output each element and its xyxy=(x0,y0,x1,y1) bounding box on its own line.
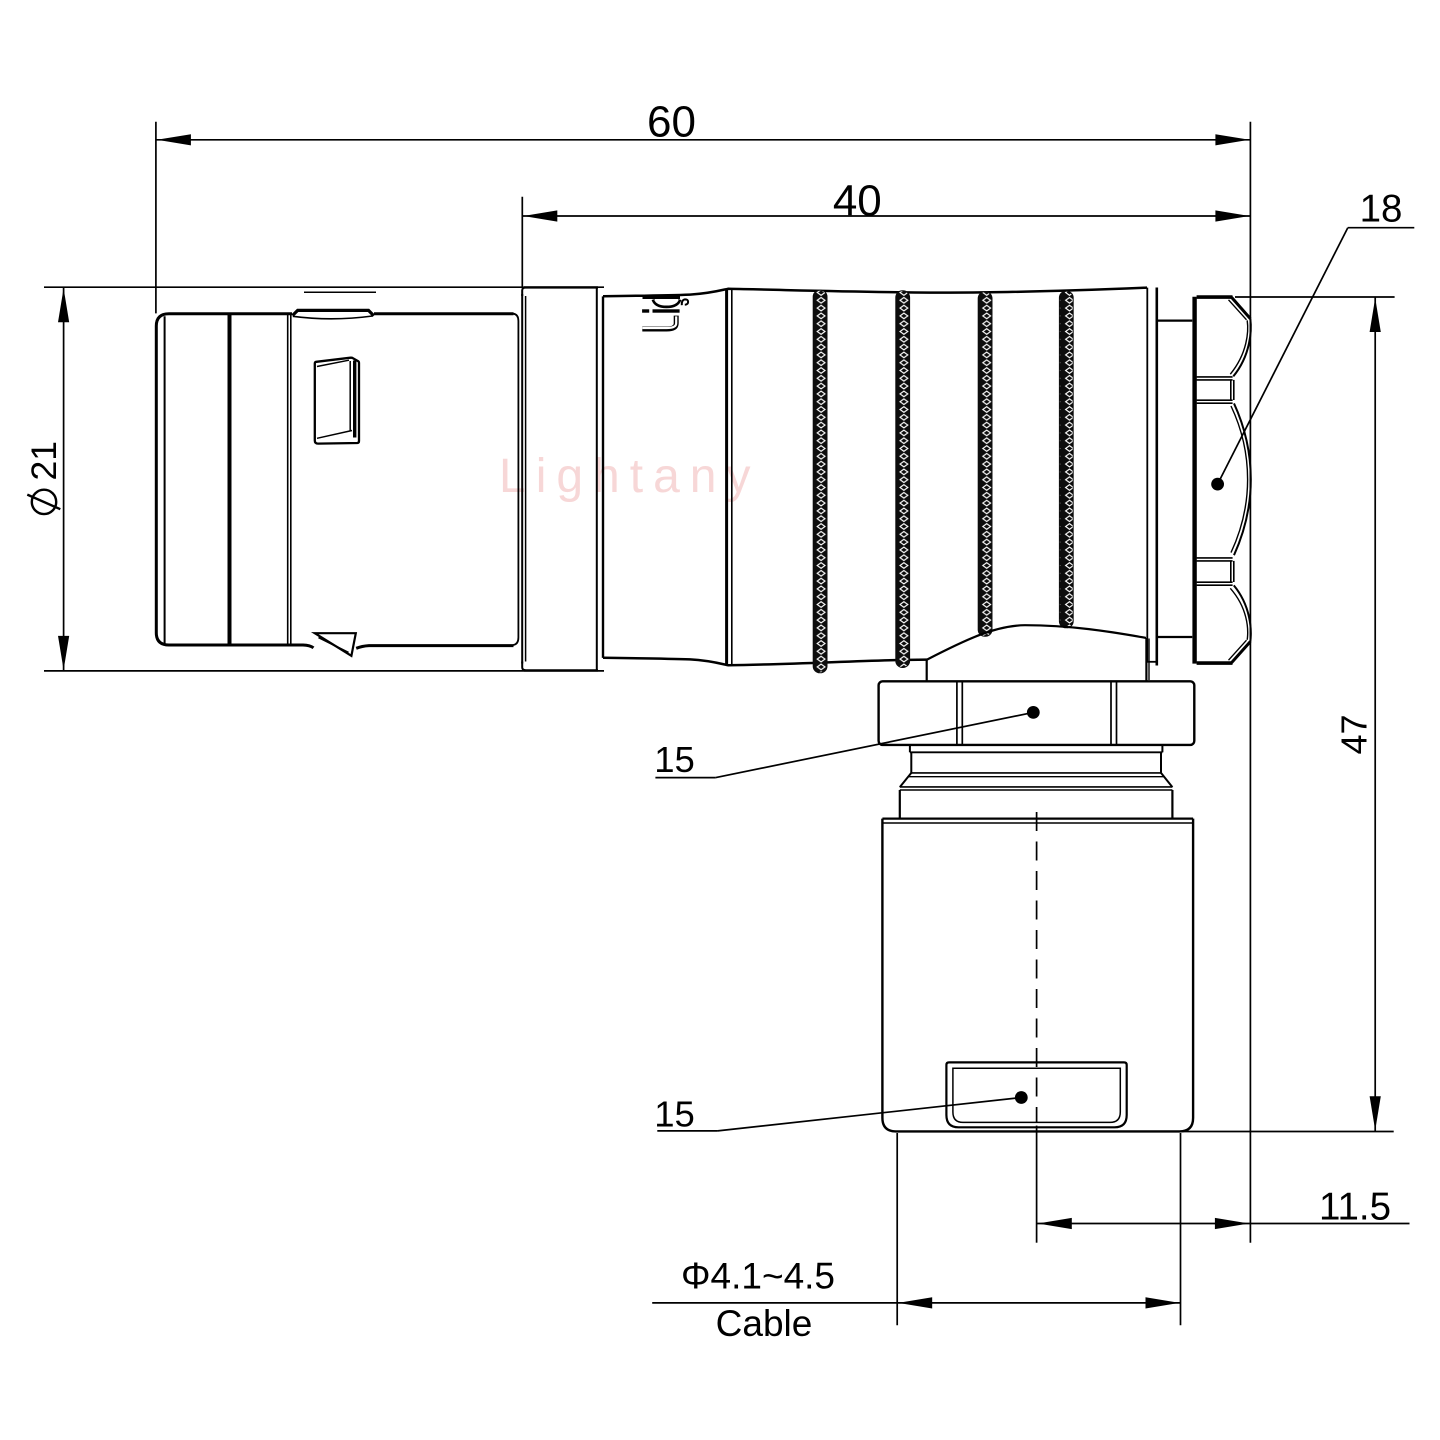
svg-text:47: 47 xyxy=(1333,714,1374,754)
svg-text:60: 60 xyxy=(647,98,696,147)
svg-text:21: 21 xyxy=(24,441,64,481)
svg-text:11.5: 11.5 xyxy=(1319,1185,1391,1228)
svg-text:18: 18 xyxy=(1360,187,1403,230)
svg-text:15: 15 xyxy=(654,1093,695,1134)
svg-text:40: 40 xyxy=(833,177,882,226)
svg-text:15: 15 xyxy=(654,739,695,780)
svg-text:Φ4.1~4.5: Φ4.1~4.5 xyxy=(681,1256,835,1297)
svg-text:Cable: Cable xyxy=(716,1303,813,1344)
svg-text:Lightany: Lightany xyxy=(499,450,760,503)
